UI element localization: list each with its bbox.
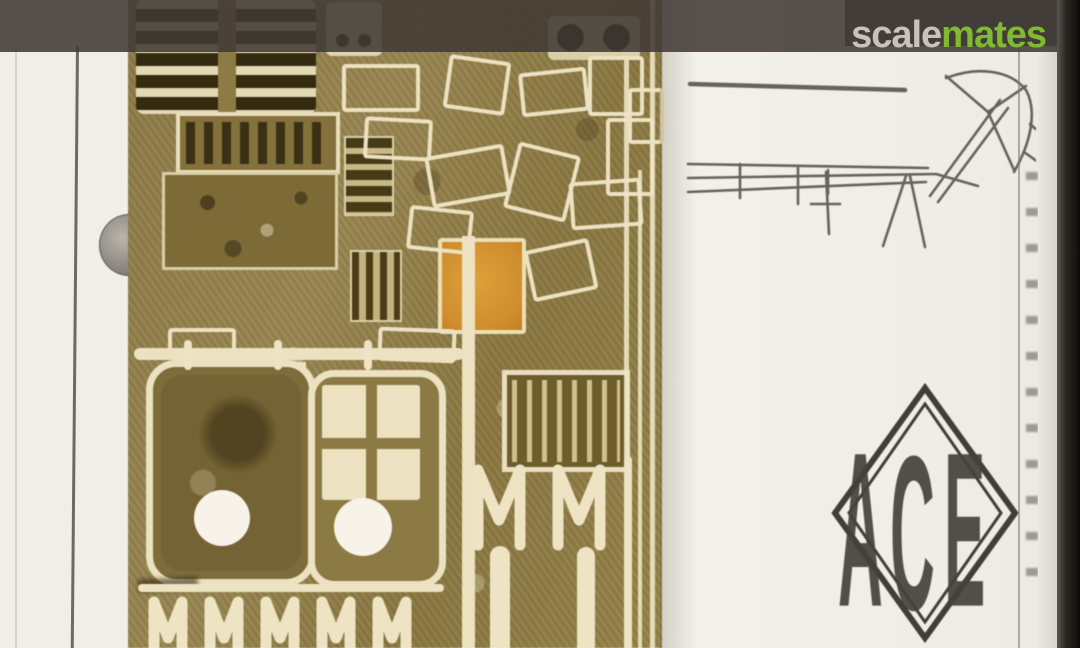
fret-linework <box>128 0 662 648</box>
rotor-blade-line <box>690 84 905 90</box>
ace-logo: A C E <box>830 382 1020 644</box>
tail-skid <box>883 176 925 247</box>
faint-print-column <box>1026 172 1038 587</box>
ace-letter-e: E <box>944 408 985 644</box>
ace-letter-c: C <box>890 412 935 644</box>
box-edge-line <box>1018 46 1020 648</box>
comb-part <box>210 602 238 648</box>
comb-part <box>154 602 182 648</box>
watermark-scale: scale <box>851 14 941 56</box>
comb-part <box>322 602 350 648</box>
fork-part <box>558 470 600 545</box>
photo-frame: A C E scalemates <box>0 0 1080 648</box>
watermark: scalemates <box>851 16 1046 54</box>
fork-part <box>478 470 520 545</box>
watermark-mates: mates <box>941 14 1046 56</box>
comb-part <box>378 602 406 648</box>
boom-ticks <box>740 164 828 204</box>
ace-letter-a: A <box>838 408 883 644</box>
photoetch-fret <box>128 0 662 648</box>
tail-strut <box>811 172 840 234</box>
helicopter-sketch <box>678 64 1036 260</box>
comb-part <box>266 602 294 648</box>
rotor-strut <box>930 100 1008 202</box>
page-crease-line <box>15 0 17 648</box>
photo-edge-strip <box>1057 0 1080 648</box>
runner-tab <box>188 344 368 366</box>
